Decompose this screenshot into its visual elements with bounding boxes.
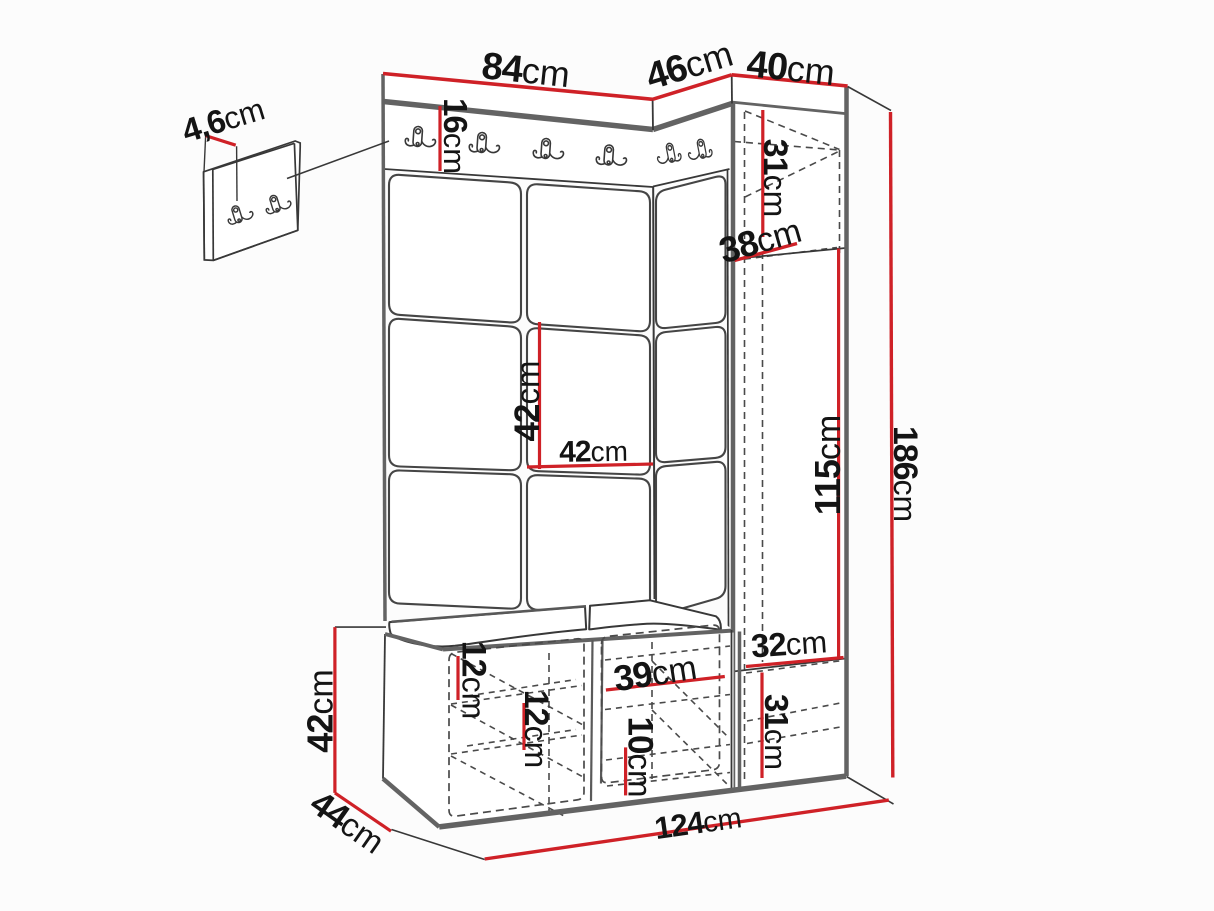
svg-text:31cm: 31cm [758,694,795,770]
svg-text:124cm: 124cm [652,799,743,846]
svg-text:31cm: 31cm [756,139,794,217]
svg-text:12cm: 12cm [517,690,555,768]
svg-text:42cm: 42cm [508,361,547,442]
svg-text:186cm: 186cm [886,426,924,522]
svg-text:12cm: 12cm [454,641,492,719]
svg-text:32cm: 32cm [750,622,828,664]
svg-text:44cm: 44cm [303,783,392,861]
svg-text:42cm: 42cm [559,435,628,469]
svg-text:115cm: 115cm [807,415,848,515]
svg-text:42cm: 42cm [300,669,341,752]
svg-text:16cm: 16cm [437,98,474,174]
svg-text:10cm: 10cm [620,717,659,798]
